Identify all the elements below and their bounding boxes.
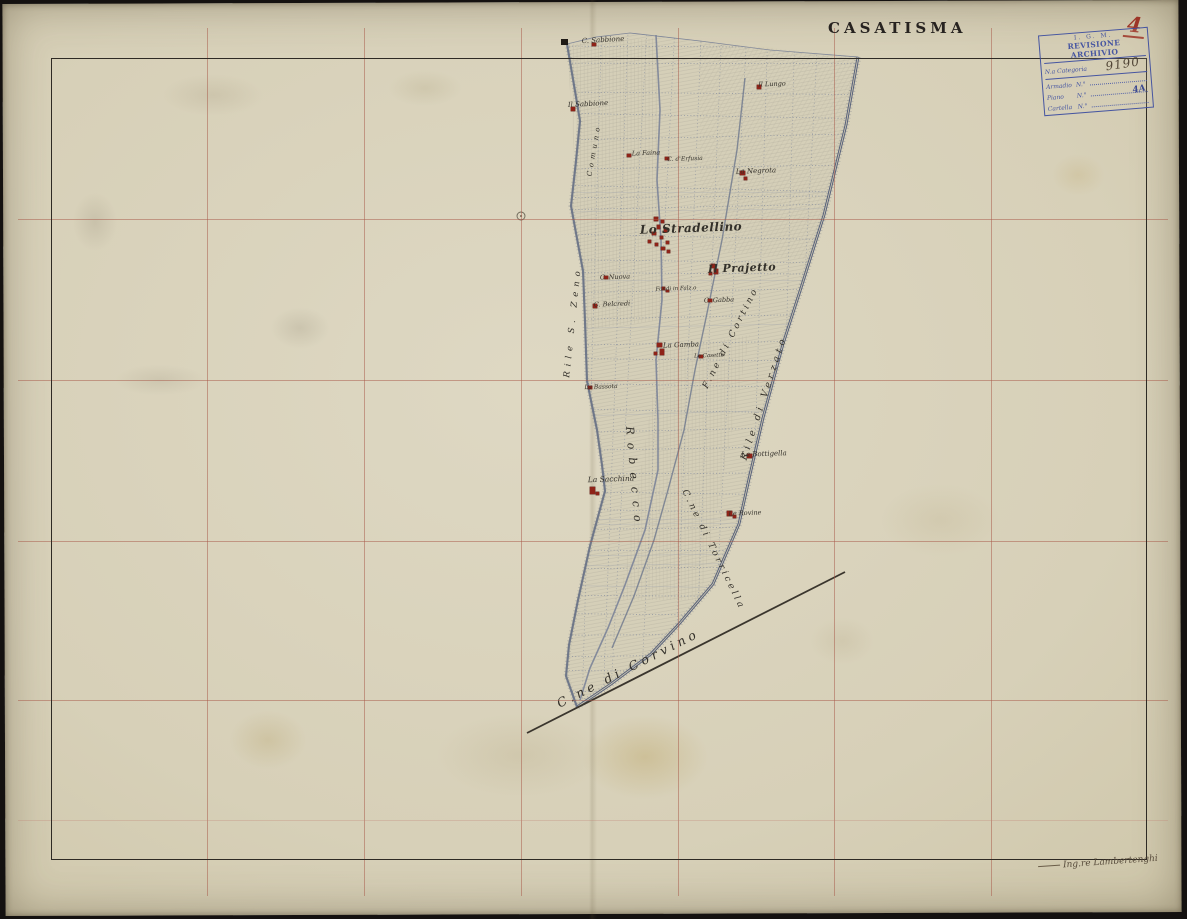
archive-stamp: I. G. M. REVISIONE ARCHIVIO N.a Categori… (1038, 27, 1154, 116)
stamp-dotted-line (1092, 102, 1149, 107)
sheet-border-frame (51, 58, 1147, 860)
stamp-category-label: N.a Categoria (1045, 66, 1088, 76)
map-title: CASATISMA (828, 19, 966, 37)
stamp-row-no: N.° (1077, 103, 1090, 111)
scanned-map-sheet: { "header": { "title": "CASATISMA", "she… (0, 0, 1187, 919)
signature-line (1038, 865, 1060, 868)
stamp-row-label: Cartella (1048, 104, 1078, 113)
